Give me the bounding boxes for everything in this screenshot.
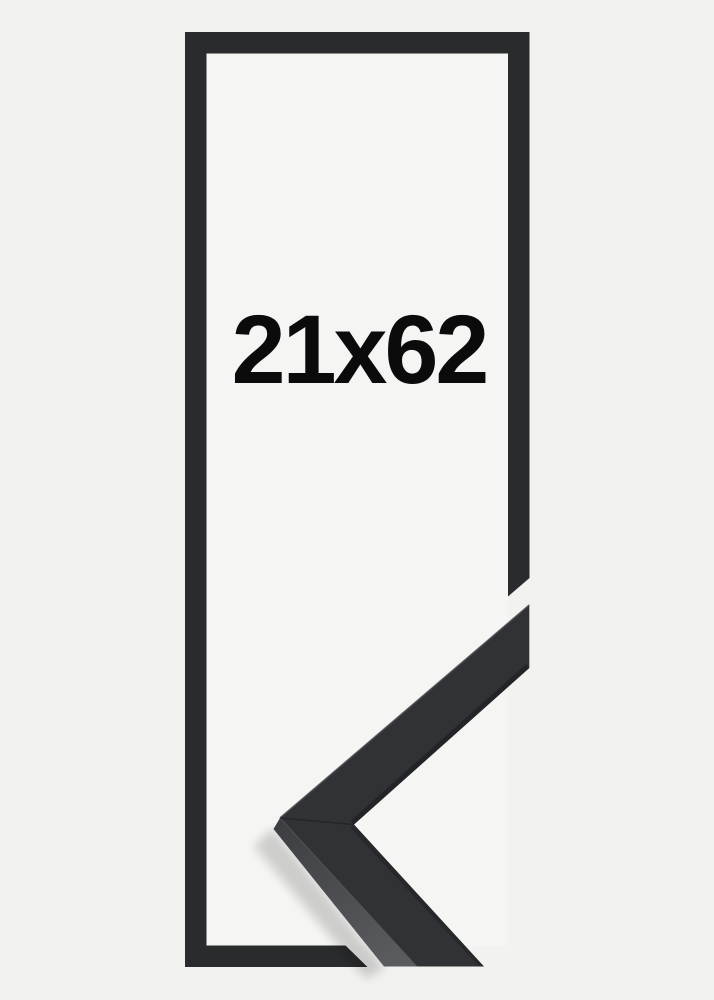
frame-size-illustration: 21x62 bbox=[0, 0, 714, 1000]
size-label: 21x62 bbox=[232, 295, 487, 404]
illustration-canvas: 21x62 bbox=[0, 0, 714, 1000]
